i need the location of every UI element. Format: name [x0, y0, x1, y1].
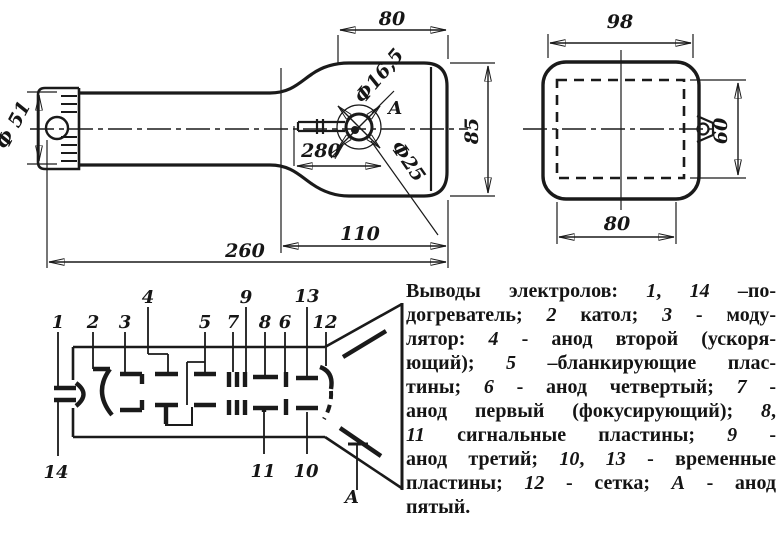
- dim-face-width: 80: [378, 8, 405, 30]
- legend-line-8: анод третий; 10, 13 - временные: [406, 447, 776, 471]
- pin-label-2: 2: [86, 312, 100, 333]
- dim-outer-width: 98: [607, 11, 633, 33]
- dim-ref-length: 280: [300, 140, 341, 162]
- crt-datasheet-figure: Ф 51 80 85 110 260 280 Ф16,5 А Ф25: [0, 0, 780, 534]
- legend-line-10: пятый.: [406, 495, 776, 519]
- legend-line-2: догреватель; 2 катол; 3 - моду-: [406, 303, 776, 327]
- pin-label-13: 13: [294, 286, 319, 307]
- legend-line-3: лятор: 4 - анод второй (ускоря-: [406, 327, 776, 351]
- screen-front-view: 98 60 80: [523, 11, 746, 244]
- legend-line-9: пластины; 12 - сетка; А - анод: [406, 471, 776, 495]
- pin-label-6: 6: [279, 312, 292, 333]
- dim-neck-dia: Ф 51: [0, 97, 35, 152]
- pin-label-4: 4: [142, 287, 155, 308]
- pin-label-7: 7: [227, 312, 240, 333]
- dim-flare-length: 110: [340, 223, 380, 245]
- pin-label-3: 3: [119, 312, 132, 333]
- anode-coating-marks: [340, 331, 386, 456]
- legend-line-4: ющий); 5 –бланкирующие плас-: [406, 351, 776, 375]
- pin-label-11: 11: [250, 461, 275, 482]
- pin-label-5: 5: [199, 312, 212, 333]
- pin-label-1: 1: [52, 312, 65, 333]
- legend-line-1: Выводы электролов: 1, 14 –по-: [406, 279, 776, 303]
- pin-label-9: 9: [240, 287, 253, 308]
- view-label-a: А: [386, 98, 403, 119]
- ext-lines-51: [27, 92, 57, 164]
- dim-anode-circle-dia: Ф25: [386, 137, 430, 186]
- pin-label-14: 14: [43, 462, 68, 483]
- pin-label-a: А: [343, 487, 360, 508]
- legend-line-7: 11 сигнальные пластины; 9 -: [406, 423, 776, 447]
- tube-side-view: Ф 51 80 85 110 260 280 Ф16,5 А Ф25: [0, 8, 495, 268]
- legend-line-5: тины; 6 - анод четвертый; 7 -: [406, 375, 776, 399]
- dim-total-length: 260: [224, 240, 265, 262]
- anode-center-dot: [351, 126, 359, 134]
- legend-line-6: анод первый (фокусирующий); 8,: [406, 399, 776, 423]
- dim-face-height: 85: [461, 118, 483, 145]
- dim-screen-width: 80: [603, 213, 630, 235]
- pin-label-8: 8: [258, 312, 272, 333]
- gun-envelope: [73, 347, 325, 437]
- dim-screen-height: 60: [710, 118, 732, 144]
- evacuation-tip: [46, 117, 68, 139]
- pin-label-12: 12: [312, 312, 337, 333]
- grid-mesh-dashed: [324, 391, 331, 419]
- pin-label-10: 10: [293, 461, 319, 482]
- electrode-legend: Выводы электролов: 1, 14 –по- догревател…: [406, 279, 776, 519]
- electrode-diagram: 1 2 3 4 5 7 9 8 6 13 12 14 11 10 А: [43, 286, 403, 508]
- lower-connector-zig: [166, 405, 192, 425]
